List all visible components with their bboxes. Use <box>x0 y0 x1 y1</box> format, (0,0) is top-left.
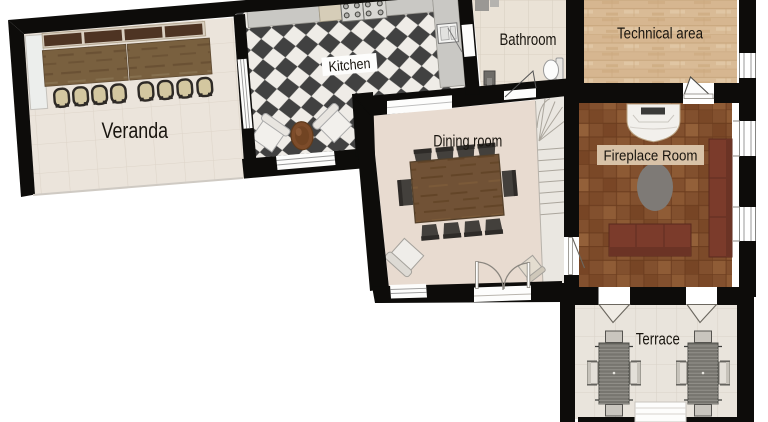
svg-text:Terrace: Terrace <box>636 330 680 349</box>
svg-text:Veranda: Veranda <box>102 118 169 143</box>
svg-text:Bathroom: Bathroom <box>500 30 557 49</box>
svg-text:Fireplace Room: Fireplace Room <box>604 148 698 165</box>
svg-text:Technical area: Technical area <box>617 26 703 43</box>
svg-text:Dining room: Dining room <box>433 131 502 150</box>
